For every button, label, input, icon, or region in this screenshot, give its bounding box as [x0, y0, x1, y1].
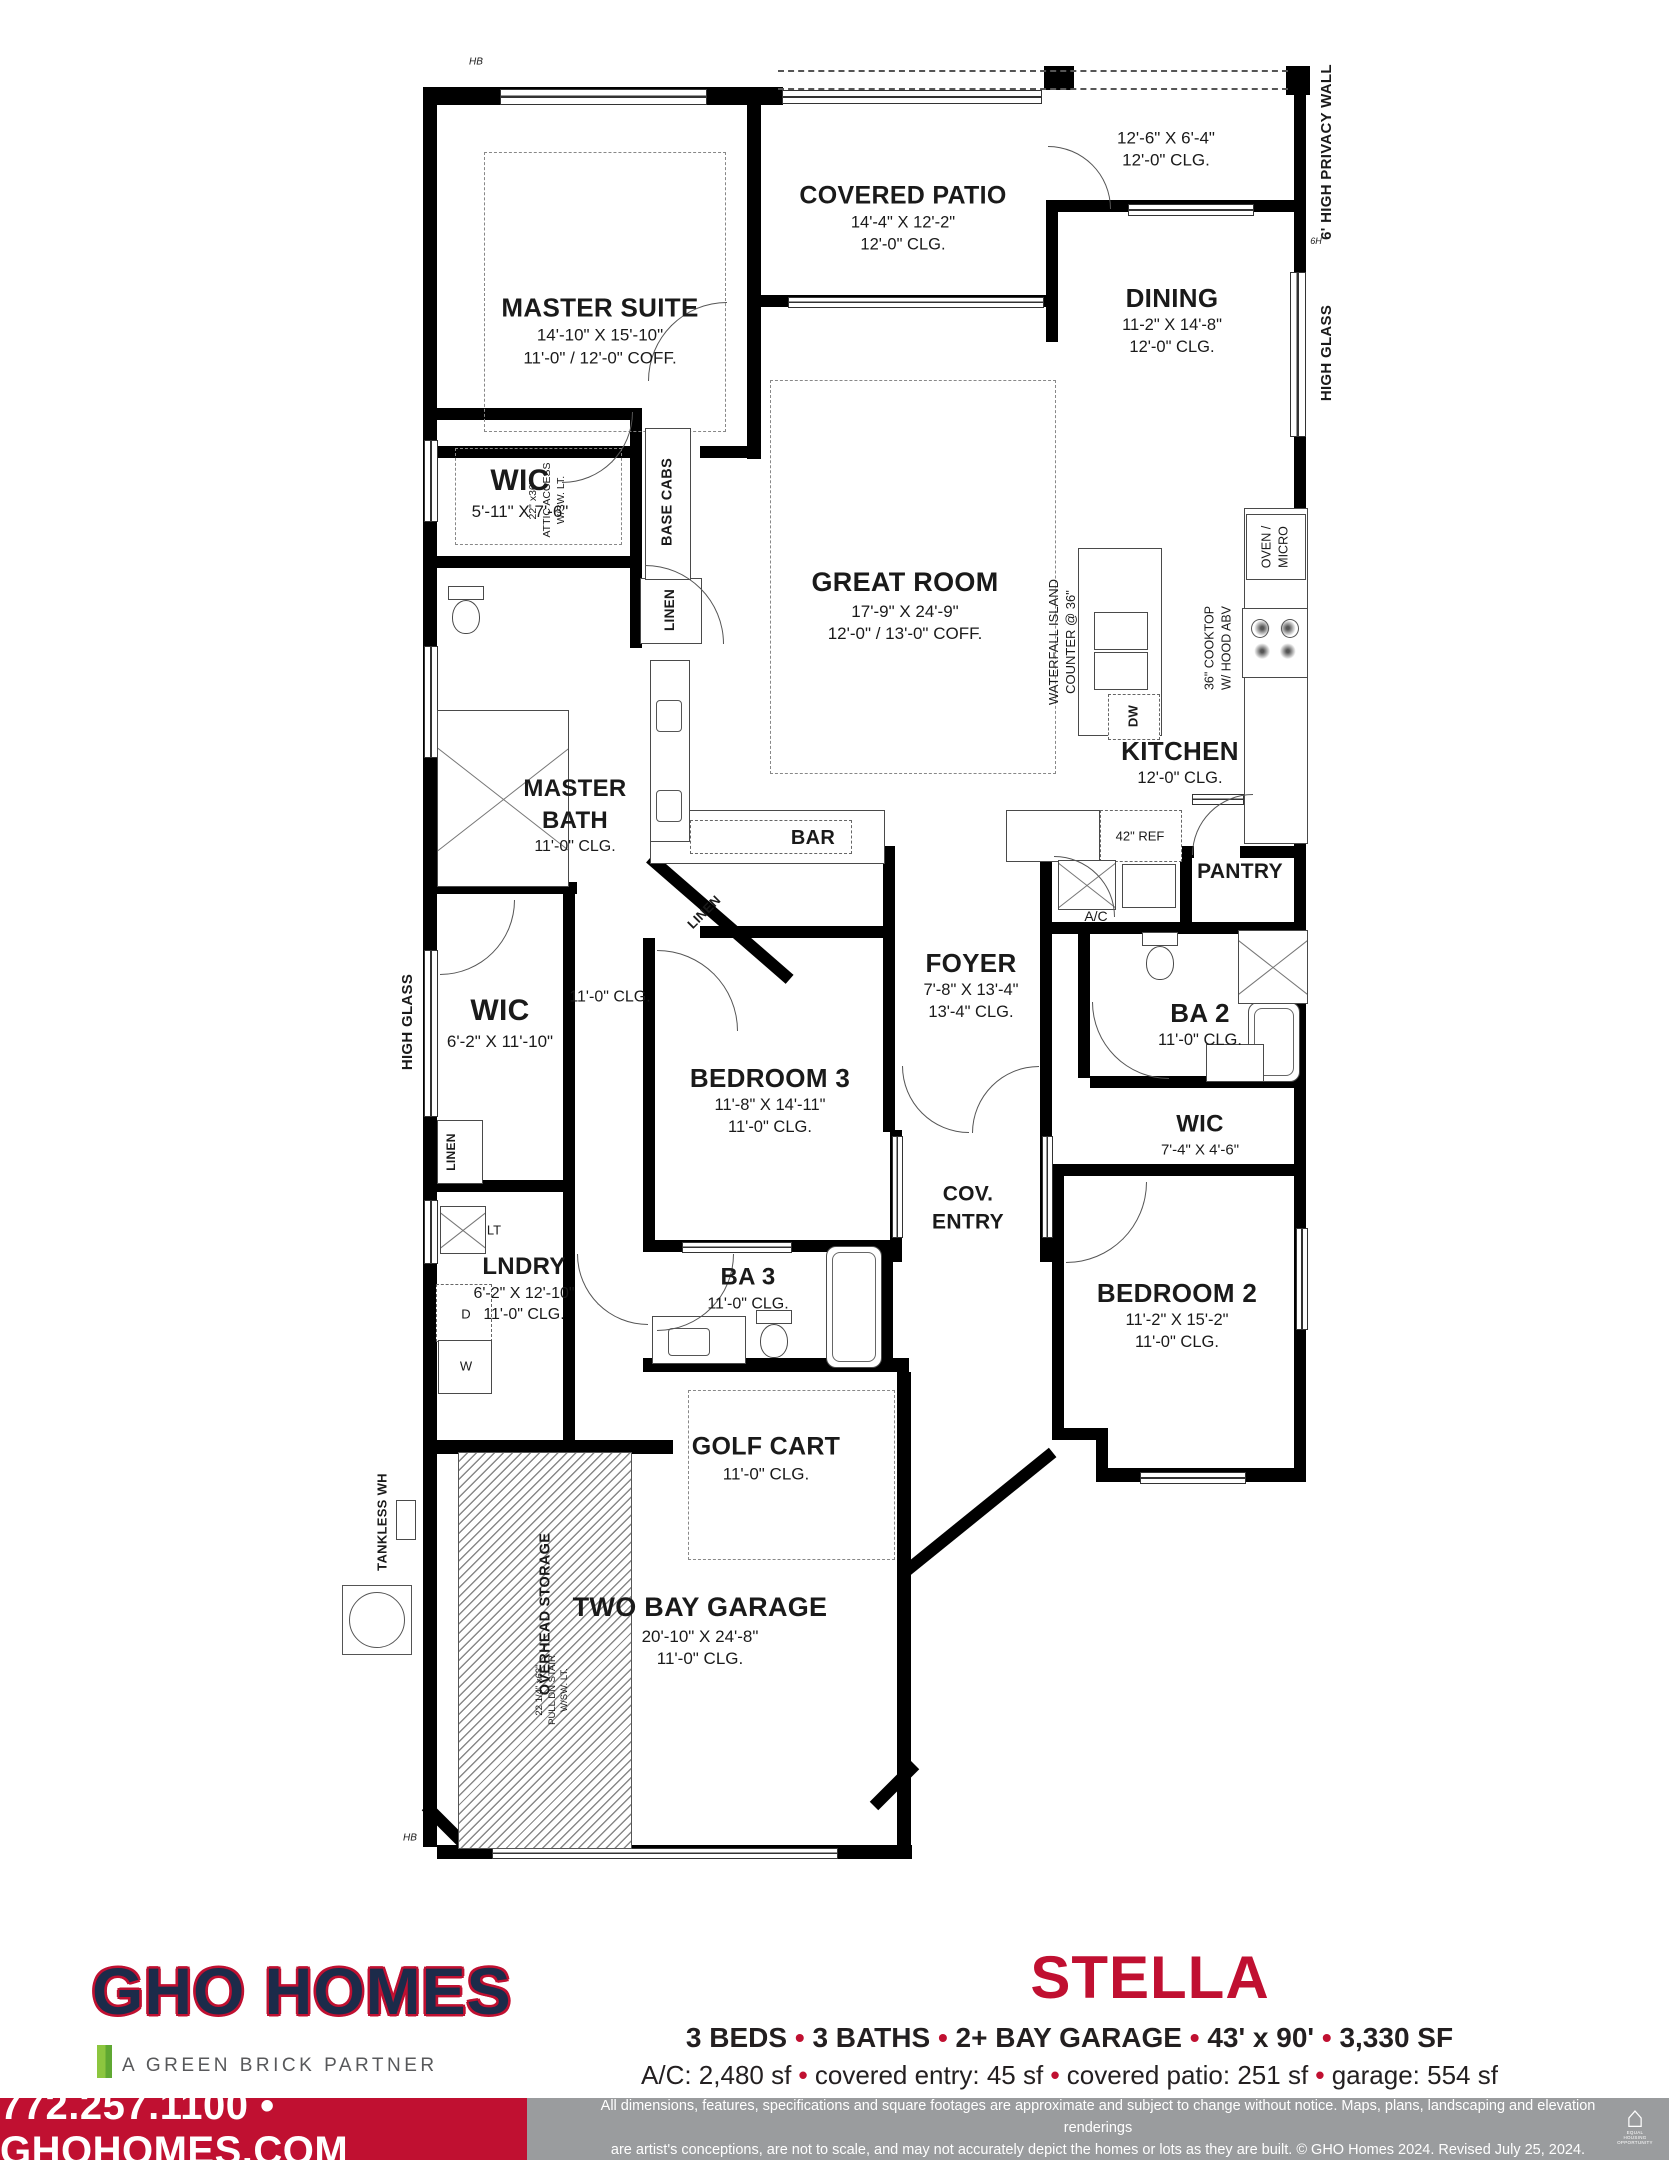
- specs-line-2: A/C: 2,480 sf • covered entry: 45 sf • c…: [470, 2060, 1669, 2091]
- wall: [437, 556, 642, 568]
- ba2-shower: [1238, 930, 1308, 1004]
- label-bar: BAR: [791, 825, 835, 851]
- sidelite-left: [892, 1136, 903, 1238]
- wc-ba2: [1142, 932, 1178, 984]
- window-master-top: [500, 89, 707, 105]
- label-wic3: WIC7'-4" X 4'-6": [1161, 1108, 1239, 1159]
- label-d: D: [461, 1305, 470, 1322]
- label-dining: DINING11-2" X 14'-8"12'-0" CLG.: [1122, 281, 1222, 359]
- label-cov-entry: COV.ENTRY: [932, 1180, 1004, 1235]
- label-ba2: BA 211'-0" CLG.: [1158, 996, 1242, 1052]
- door-arc-0: [562, 412, 633, 483]
- wall: [1040, 846, 1052, 1132]
- disclaimer-line-2: are artist's conceptions, are not to sca…: [588, 2140, 1608, 2160]
- label-bedroom2: BEDROOM 211'-2" X 15'-2"11'-0" CLG.: [1097, 1276, 1257, 1354]
- disclaimer-bar: All dimensions, features, specifications…: [527, 2098, 1669, 2160]
- label-high-glass-right: HIGH GLASS: [1317, 305, 1337, 401]
- label-ac: A/C: [1084, 907, 1107, 925]
- ba3-tub: [826, 1246, 882, 1368]
- label-garage: TWO BAY GARAGE20'-10" X 24'-8"11'-0" CLG…: [573, 1590, 828, 1671]
- label-kitchen: KITCHEN12'-0" CLG.: [1121, 734, 1239, 790]
- label-master-suite: MASTER SUITE14'-10" X 15'-10"11'-0" / 12…: [501, 290, 698, 369]
- wall: [1046, 200, 1058, 342]
- garage-door: [492, 1848, 838, 1859]
- floor-plan: HBMASTER SUITE14'-10" X 15'-10"11'-0" / …: [0, 0, 1669, 1905]
- label-attic: 22" x36"ATTIC ACCESSW/SW. LT.: [527, 462, 569, 537]
- master-sink-2: [656, 790, 682, 822]
- equipment-pad: [342, 1585, 412, 1655]
- wall: [700, 446, 760, 458]
- wall: [1078, 934, 1090, 1078]
- equal-housing-house-icon: ⌂: [1615, 2104, 1655, 2131]
- contact-text: 772.257.1100 • GHOHOMES.COM: [0, 2084, 527, 2160]
- wall: [1294, 93, 1306, 219]
- window-high-glass-left: [424, 950, 438, 1117]
- label-linen3: LINEN: [444, 1133, 460, 1171]
- equal-housing-logo: ⌂ EQUAL HOUSING OPPORTUNITY: [1615, 2104, 1655, 2146]
- label-bedroom3: BEDROOM 311'-8" X 14'-11"11'-0" CLG.: [690, 1061, 850, 1139]
- window-bedroom2-right: [1296, 1228, 1308, 1330]
- window-bedroom2-bottom: [1140, 1472, 1246, 1484]
- ac-unit-2: [1122, 864, 1176, 908]
- window-dining-top: [1128, 204, 1254, 216]
- label-wic2: WIC6'-2" X 11'-10": [447, 991, 553, 1053]
- label-great-room: GREAT ROOM17'-9" X 24'-9"12'-0" / 13'-0"…: [812, 565, 999, 646]
- plan-name: STELLA: [940, 1943, 1360, 2012]
- roofline-dashed: [778, 70, 1288, 90]
- wall: [897, 1372, 911, 1570]
- floor-plan-sheet: { "plan": { "labels": [ {"id":"hb-top","…: [0, 0, 1669, 2160]
- label-privacy-wall: 6' HIGH PRIVACY WALL: [1317, 64, 1337, 240]
- label-base-cabs: BASE CABS: [658, 458, 677, 546]
- gho-homes-logo: GHO HOMES: [92, 1953, 512, 2029]
- wall: [883, 846, 895, 1132]
- wc-ba3: [756, 1310, 792, 1362]
- tankless-wh-unit: [396, 1500, 416, 1540]
- green-brick-icon: [97, 2045, 112, 2078]
- island-sink-1: [1094, 612, 1148, 650]
- window-masterbath: [424, 646, 438, 758]
- sidelite-right: [1042, 1136, 1053, 1238]
- label-hall-clg: 11'-0" CLG.: [569, 986, 650, 1007]
- disclaimer-line-1: All dimensions, features, specifications…: [588, 2096, 1608, 2140]
- wall: [1052, 1164, 1064, 1440]
- door-arc-11: [972, 1066, 1039, 1133]
- label-w: W: [460, 1357, 472, 1374]
- wall: [897, 1560, 911, 1850]
- master-sink-1: [656, 700, 682, 732]
- label-hb-top: HB: [469, 55, 483, 68]
- wall: [881, 1244, 893, 1364]
- door-arc-1: [645, 565, 724, 644]
- slider-patio: [788, 297, 1044, 308]
- label-foyer: FOYER7'-8" X 13'-4"13'-4" CLG.: [923, 946, 1018, 1024]
- island-sink-2: [1094, 652, 1148, 690]
- label-ba3: BA 311'-0" CLG.: [707, 1262, 788, 1315]
- cooktop-appliance: [1242, 608, 1308, 678]
- label-covered-patio: COVERED PATIO14'-4" X 12'-2"12'-0" CLG.: [799, 180, 1006, 257]
- label-lndry: LNDRY6'-2" X 12'-10"11'-0" CLG.: [473, 1251, 574, 1325]
- window-laundry: [424, 1200, 438, 1264]
- label-dw: DW: [1124, 705, 1141, 727]
- ba3-sink: [668, 1328, 710, 1356]
- wall-diag-courtyard: [901, 1448, 1056, 1577]
- specs-line-1: 3 BEDS • 3 BATHS • 2+ BAY GARAGE • 43' x…: [470, 2022, 1669, 2054]
- label-patio-ext: 12'-6" X 6'-4"12'-0" CLG.: [1117, 128, 1215, 173]
- window-wic: [424, 440, 438, 522]
- door-arc-2: [440, 900, 515, 975]
- brand-subtitle: A GREEN BRICK PARTNER: [122, 2055, 438, 2077]
- label-tankless: TANKLESS WH: [373, 1473, 390, 1571]
- wall: [1286, 66, 1310, 95]
- contact-bar: 772.257.1100 • GHOHOMES.COM: [0, 2098, 527, 2160]
- wall-diag-garage-right: [870, 1761, 919, 1810]
- door-arc-3: [657, 950, 738, 1031]
- label-ref: 42" REF: [1116, 827, 1165, 844]
- door-arc-13: [1048, 146, 1111, 209]
- wc-master: [448, 586, 484, 638]
- label-golf-cart: GOLF CART11'-0" CLG.: [692, 1430, 841, 1485]
- label-lt: LT: [487, 1221, 501, 1238]
- door-arc-10: [902, 1066, 969, 1133]
- label-linen1: LINEN: [661, 589, 679, 631]
- door-arc-5: [1066, 1182, 1147, 1263]
- wall: [563, 894, 575, 1186]
- label-hb-bottom: HB: [403, 1831, 417, 1844]
- wall: [1052, 1164, 1306, 1176]
- label-six-h: 6H: [1310, 236, 1322, 248]
- window-high-glass-right: [1290, 272, 1306, 437]
- window-patio-screen: [782, 90, 1042, 104]
- kitchen-cab: [1006, 810, 1100, 862]
- label-oven-micro: OVEN /MICRO: [1259, 526, 1292, 568]
- label-island: WATERFALL ISLANDCOUNTER @ 36": [1045, 579, 1079, 705]
- label-high-glass-left: HIGH GLASS: [398, 974, 418, 1070]
- wall: [643, 938, 655, 1244]
- label-pantry: PANTRY: [1197, 858, 1283, 886]
- laundry-tub: [440, 1206, 486, 1254]
- label-stair: 22 1/4" x63"PULL DN STAIRW/SW. LT.: [534, 1655, 572, 1725]
- door-arc-8: [577, 1254, 648, 1325]
- window-bedroom3: [682, 1242, 792, 1253]
- label-master-bath: MASTERBATH11'-0" CLG.: [523, 773, 626, 857]
- wall: [747, 87, 761, 459]
- label-cooktop: 36" COOKTOPW/ HOOD ABV: [1202, 606, 1235, 690]
